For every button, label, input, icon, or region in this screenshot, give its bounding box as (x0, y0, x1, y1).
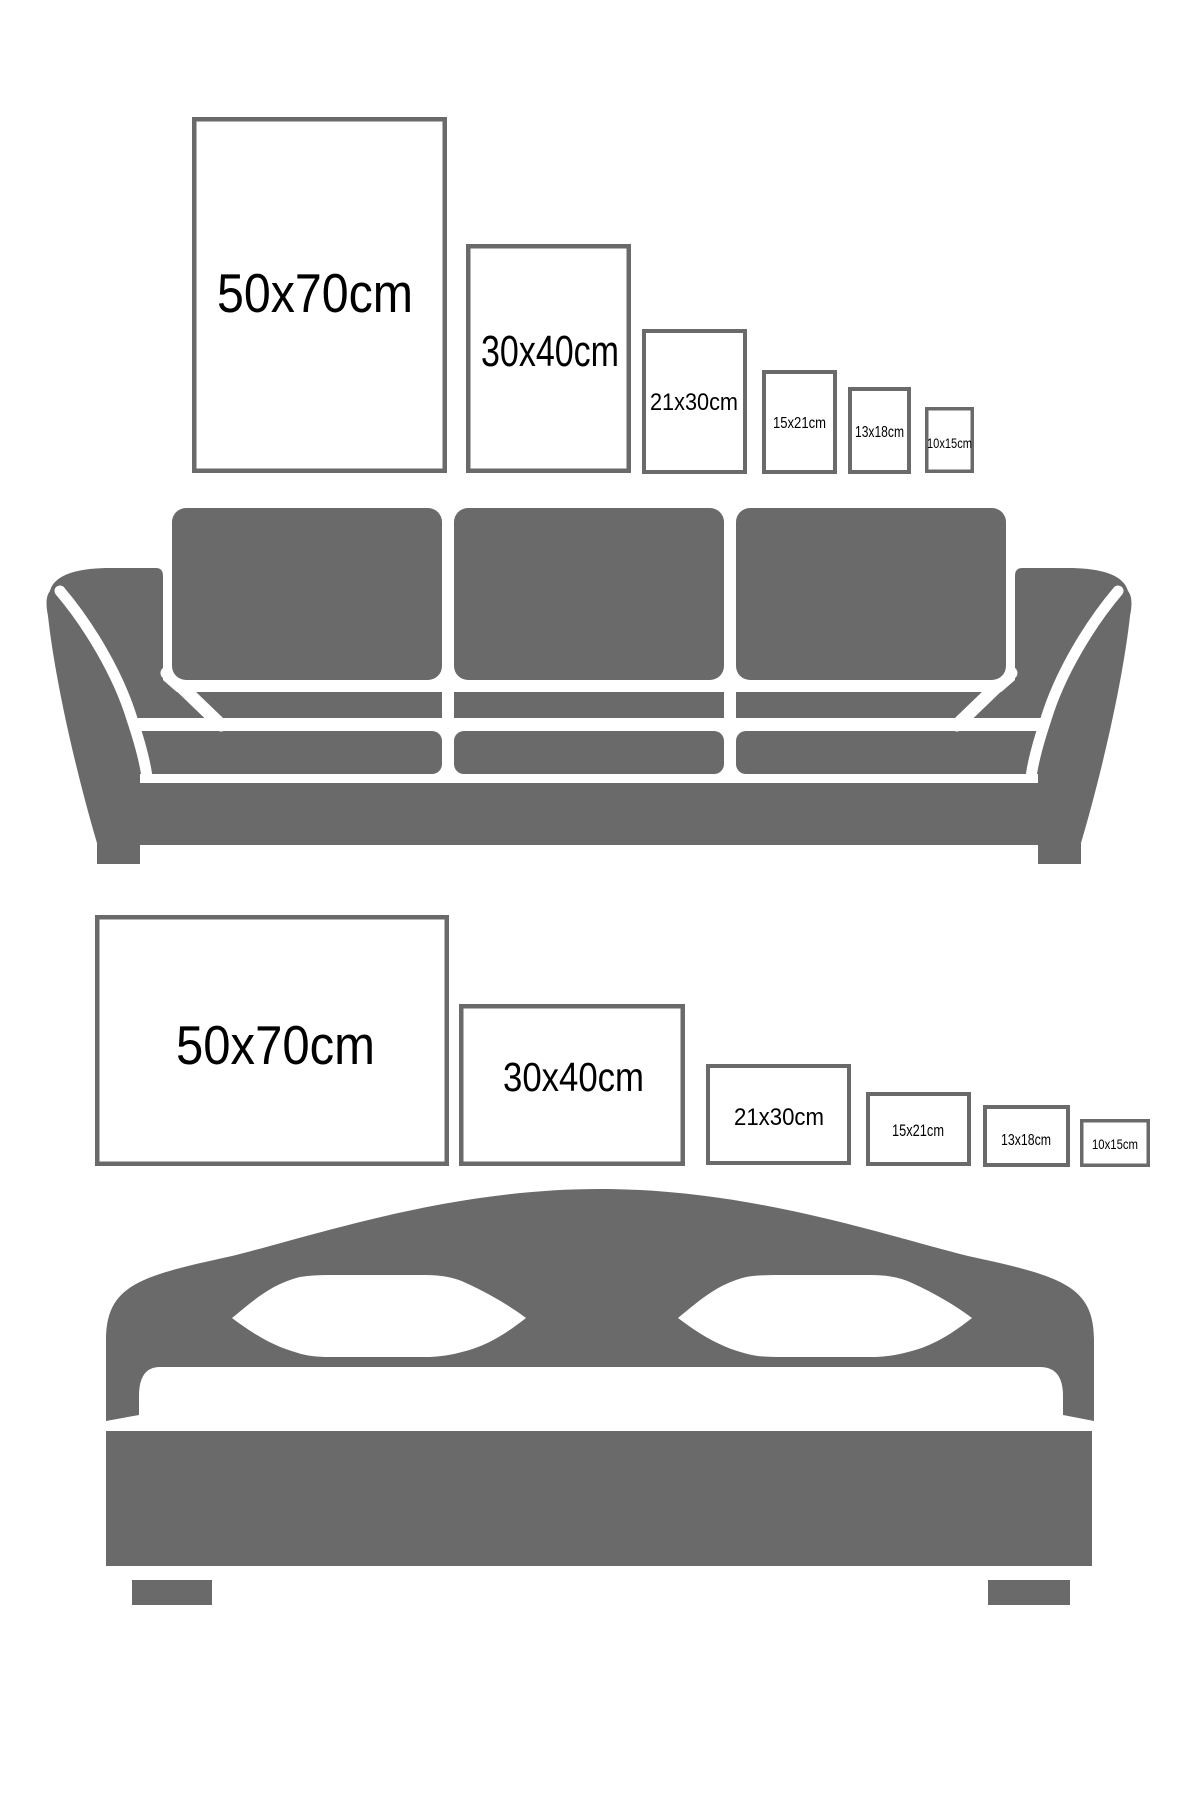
svg-text:10x15cm: 10x15cm (927, 435, 972, 451)
svg-text:21x30cm: 21x30cm (650, 389, 738, 416)
svg-text:13x18cm: 13x18cm (855, 424, 904, 441)
svg-text:15x21cm: 15x21cm (892, 1121, 944, 1140)
svg-text:21x30cm: 21x30cm (734, 1104, 824, 1131)
svg-text:30x40cm: 30x40cm (503, 1054, 644, 1100)
svg-text:13x18cm: 13x18cm (1001, 1132, 1051, 1149)
svg-text:15x21cm: 15x21cm (773, 415, 826, 432)
svg-text:10x15cm: 10x15cm (1092, 1136, 1138, 1152)
svg-text:50x70cm: 50x70cm (176, 1014, 375, 1076)
svg-text:50x70cm: 50x70cm (217, 262, 413, 324)
svg-text:30x40cm: 30x40cm (481, 327, 619, 376)
